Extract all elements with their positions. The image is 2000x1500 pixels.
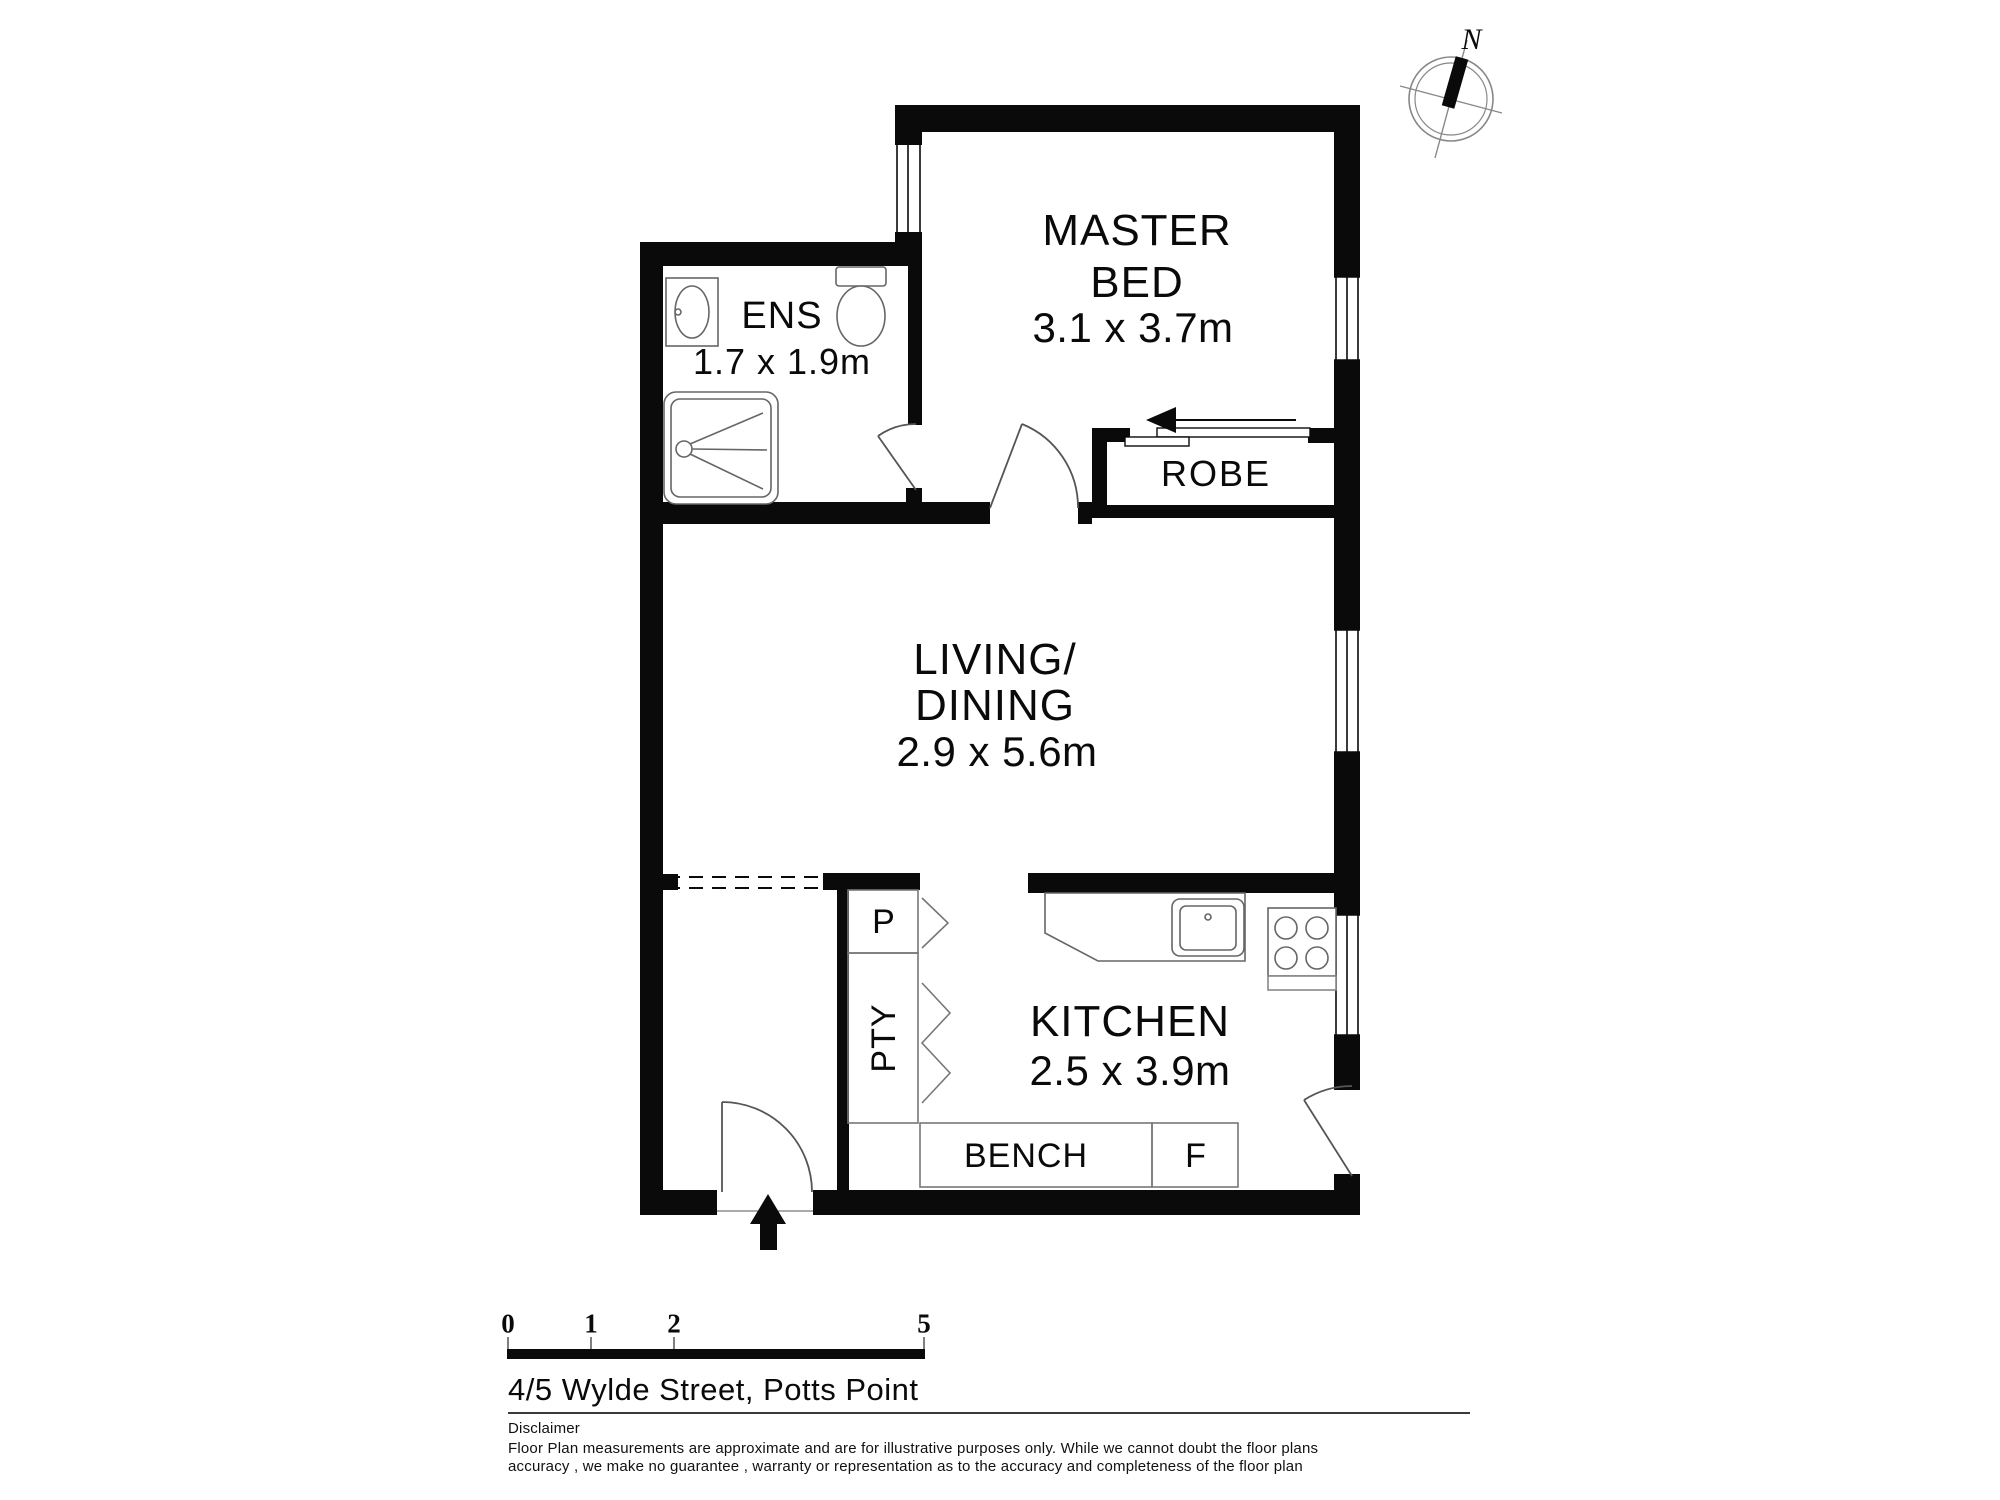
label-living-line2: DINING [915,684,1075,728]
floor-plan-page: MASTER BED 3.1 x 3.7m ENS 1.7 x 1.9m ROB… [0,0,2000,1500]
scale-tick-0: 0 [501,1311,515,1338]
label-master-bed-line1: MASTER [1042,209,1231,253]
scale-tick-1: 1 [584,1311,598,1338]
compass-needle [1448,58,1462,107]
window-kitchen-right [1334,915,1360,1035]
label-master-bed-dims: 3.1 x 3.7m [1032,307,1233,349]
entry-door [717,1102,813,1211]
wall-robe-top-stub-right [1308,428,1338,443]
label-pantry-top: P [872,905,896,939]
wall-outer-right-1 [1334,105,1360,277]
wall-living-top [640,502,990,524]
wall-robe-bottom [1080,505,1360,518]
window-master-left [897,142,920,232]
balcony-door [1304,1086,1352,1176]
compass-icon [1400,40,1502,158]
wall-master-top [895,105,1360,132]
kitchen-fixtures [1045,893,1336,990]
ens-door [878,424,916,490]
wall-ens-door-stub [906,488,922,504]
label-living-dims: 2.9 x 5.6m [896,731,1097,773]
toilet-icon [836,267,886,346]
wall-ens-right [908,266,922,425]
shower-icon [664,392,778,504]
disclaimer-line1: Floor Plan measurements are approximate … [508,1440,1318,1457]
wall-outer-right-4 [1334,1035,1360,1090]
label-master-bed-line2: BED [1090,261,1183,305]
disclaimer-line2: accuracy , we make no guarantee , warran… [508,1458,1303,1475]
kitchen-sink-icon [1172,899,1244,956]
label-kitchen: KITCHEN [1030,1000,1230,1044]
label-ens-dims: 1.7 x 1.9m [693,344,871,380]
window-master-right [1334,277,1360,360]
wall-outer-left [640,242,663,1215]
label-north: N [1461,25,1482,55]
wall-master-left-upper [895,105,922,145]
wall-bottom-right [813,1190,1360,1215]
wall-ens-top [640,242,922,266]
dashed-opening [666,877,824,888]
robe-sliding-doors [1125,407,1310,446]
bifold-door-lower [922,983,950,1103]
cooktop-icon [1268,908,1336,990]
label-bench: BENCH [964,1139,1088,1173]
scale-tick-5: 5 [917,1311,931,1338]
footer-divider [508,1412,1470,1414]
window-living-right [1334,630,1360,752]
wall-kitchen-top [1028,873,1360,893]
label-kitchen-dims: 2.5 x 3.9m [1029,1050,1230,1092]
vanity-sink-icon [666,278,718,346]
address-title: 4/5 Wylde Street, Potts Point [508,1372,919,1408]
label-robe: ROBE [1161,456,1271,492]
master-bed-door [990,424,1078,508]
label-pantry: PTY [867,1003,901,1072]
scale-tick-2: 2 [667,1311,681,1338]
bifold-door-upper [922,898,948,948]
label-ens: ENS [741,297,822,335]
wall-outer-right-2 [1334,360,1360,630]
label-living-line1: LIVING/ [913,638,1077,682]
wall-bottom-left [640,1190,717,1215]
entry-arrow-icon [750,1194,786,1250]
disclaimer-heading: Disclaimer [508,1420,580,1437]
label-fridge: F [1185,1139,1207,1173]
scale-bar [507,1337,925,1359]
